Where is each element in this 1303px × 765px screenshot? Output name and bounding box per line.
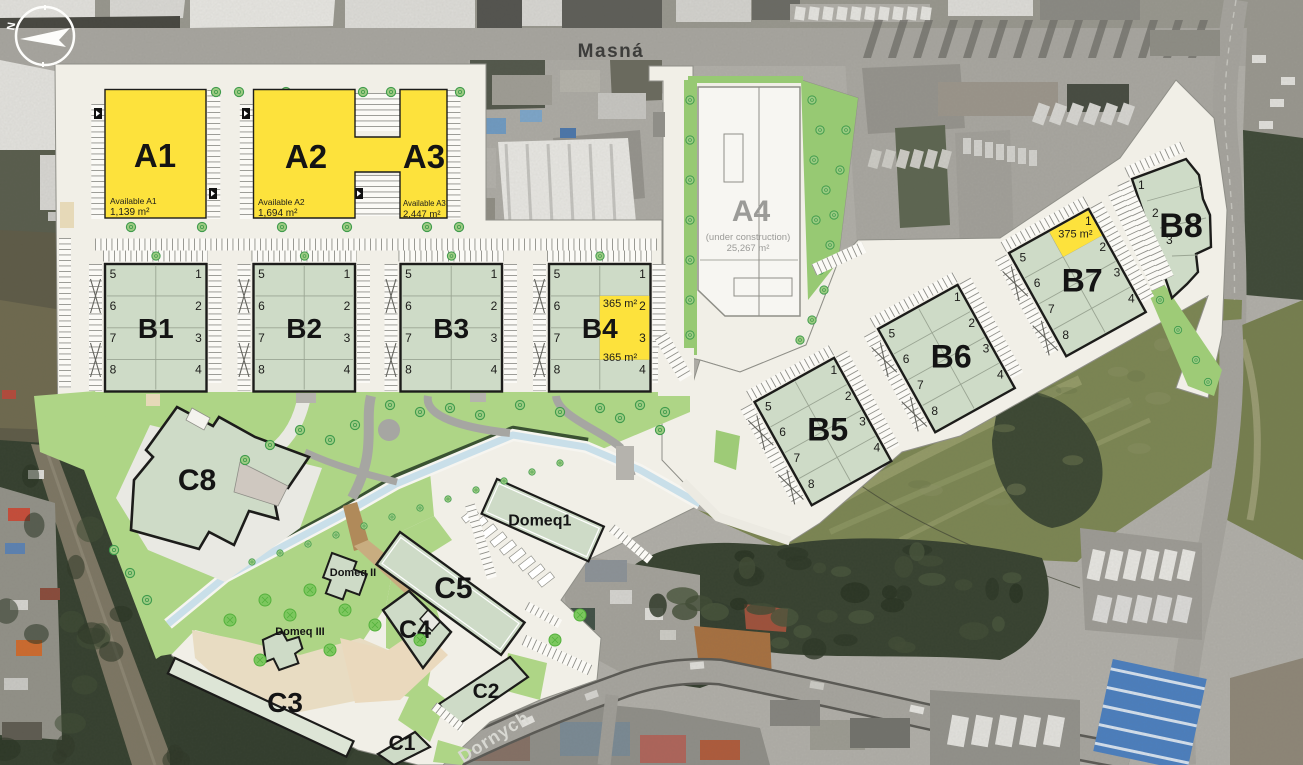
svg-text:B3: B3 bbox=[433, 313, 469, 344]
svg-text:(under construction): (under construction) bbox=[706, 232, 790, 243]
svg-text:7: 7 bbox=[554, 331, 561, 345]
svg-text:3: 3 bbox=[859, 415, 866, 429]
svg-text:Domeq III: Domeq III bbox=[275, 626, 325, 638]
svg-text:3: 3 bbox=[195, 331, 202, 345]
svg-text:2: 2 bbox=[491, 299, 498, 313]
svg-text:Available A2: Available A2 bbox=[258, 197, 305, 207]
svg-text:365 m²: 365 m² bbox=[603, 298, 638, 310]
svg-text:7: 7 bbox=[917, 378, 924, 392]
svg-text:Masná: Masná bbox=[578, 41, 645, 62]
svg-text:7: 7 bbox=[110, 331, 117, 345]
svg-text:B1: B1 bbox=[138, 313, 174, 344]
svg-text:8: 8 bbox=[258, 363, 265, 377]
svg-text:4: 4 bbox=[491, 363, 498, 377]
svg-text:5: 5 bbox=[1019, 250, 1026, 264]
svg-text:8: 8 bbox=[1062, 328, 1069, 342]
svg-text:8: 8 bbox=[405, 363, 412, 377]
svg-text:3: 3 bbox=[1114, 266, 1121, 280]
svg-text:1,694 m²: 1,694 m² bbox=[258, 208, 298, 219]
svg-text:1: 1 bbox=[1085, 214, 1092, 228]
svg-text:1,139 m²: 1,139 m² bbox=[110, 207, 150, 218]
svg-text:8: 8 bbox=[110, 363, 117, 377]
svg-text:3: 3 bbox=[983, 342, 990, 356]
svg-text:B8: B8 bbox=[1159, 207, 1202, 245]
svg-text:4: 4 bbox=[639, 363, 646, 377]
svg-text:5: 5 bbox=[554, 267, 561, 281]
svg-text:1: 1 bbox=[491, 267, 498, 281]
svg-text:6: 6 bbox=[405, 299, 412, 313]
svg-text:1: 1 bbox=[639, 267, 646, 281]
svg-text:4: 4 bbox=[997, 367, 1004, 381]
svg-text:C5: C5 bbox=[434, 572, 472, 605]
svg-text:5: 5 bbox=[888, 326, 895, 340]
svg-text:6: 6 bbox=[110, 299, 117, 313]
svg-text:4: 4 bbox=[873, 440, 880, 454]
svg-text:1: 1 bbox=[1138, 178, 1145, 192]
svg-text:5: 5 bbox=[405, 267, 412, 281]
svg-text:Domeq II: Domeq II bbox=[330, 567, 376, 579]
svg-text:2: 2 bbox=[968, 316, 975, 330]
svg-text:Available A1: Available A1 bbox=[110, 196, 157, 206]
svg-text:C1: C1 bbox=[389, 732, 416, 755]
svg-text:1: 1 bbox=[831, 363, 838, 377]
svg-text:4: 4 bbox=[195, 363, 202, 377]
svg-text:2: 2 bbox=[344, 299, 351, 313]
svg-text:8: 8 bbox=[931, 404, 938, 418]
svg-text:6: 6 bbox=[1034, 276, 1041, 290]
svg-text:1: 1 bbox=[195, 267, 202, 281]
svg-text:6: 6 bbox=[779, 425, 786, 439]
svg-text:B5: B5 bbox=[807, 411, 848, 447]
svg-text:7: 7 bbox=[794, 451, 801, 465]
svg-text:2: 2 bbox=[195, 299, 202, 313]
svg-text:1: 1 bbox=[954, 290, 961, 304]
svg-text:3: 3 bbox=[344, 331, 351, 345]
svg-text:A1: A1 bbox=[134, 137, 176, 174]
svg-text:7: 7 bbox=[1048, 302, 1055, 316]
svg-text:Domeq1: Domeq1 bbox=[508, 512, 571, 529]
svg-text:Available A3: Available A3 bbox=[403, 199, 446, 208]
svg-text:1: 1 bbox=[344, 267, 351, 281]
svg-text:4: 4 bbox=[1128, 291, 1135, 305]
svg-text:2: 2 bbox=[639, 299, 646, 313]
svg-text:A4: A4 bbox=[732, 195, 771, 228]
svg-text:5: 5 bbox=[258, 267, 265, 281]
svg-text:C3: C3 bbox=[267, 687, 303, 718]
svg-text:7: 7 bbox=[405, 331, 412, 345]
svg-text:6: 6 bbox=[903, 352, 910, 366]
svg-text:8: 8 bbox=[808, 477, 815, 491]
svg-text:3: 3 bbox=[491, 331, 498, 345]
svg-text:2: 2 bbox=[1099, 240, 1106, 254]
svg-text:A3: A3 bbox=[403, 138, 445, 175]
svg-text:B4: B4 bbox=[582, 313, 618, 344]
svg-text:25,267 m²: 25,267 m² bbox=[727, 243, 770, 254]
svg-text:B6: B6 bbox=[931, 338, 972, 374]
svg-text:C8: C8 bbox=[178, 464, 216, 497]
svg-text:7: 7 bbox=[258, 331, 265, 345]
svg-text:6: 6 bbox=[258, 299, 265, 313]
svg-text:2: 2 bbox=[845, 389, 852, 403]
svg-text:6: 6 bbox=[554, 299, 561, 313]
svg-text:3: 3 bbox=[639, 331, 646, 345]
svg-text:4: 4 bbox=[344, 363, 351, 377]
svg-text:B2: B2 bbox=[286, 313, 322, 344]
svg-text:2,447 m²: 2,447 m² bbox=[403, 209, 441, 220]
svg-text:A2: A2 bbox=[285, 138, 327, 175]
svg-text:365 m²: 365 m² bbox=[603, 352, 638, 364]
svg-text:2: 2 bbox=[1152, 206, 1159, 220]
svg-text:B7: B7 bbox=[1062, 262, 1103, 298]
svg-text:5: 5 bbox=[110, 267, 117, 281]
svg-text:8: 8 bbox=[554, 363, 561, 377]
svg-text:375 m²: 375 m² bbox=[1058, 229, 1093, 241]
svg-text:C2: C2 bbox=[473, 680, 500, 703]
svg-text:5: 5 bbox=[765, 399, 772, 413]
